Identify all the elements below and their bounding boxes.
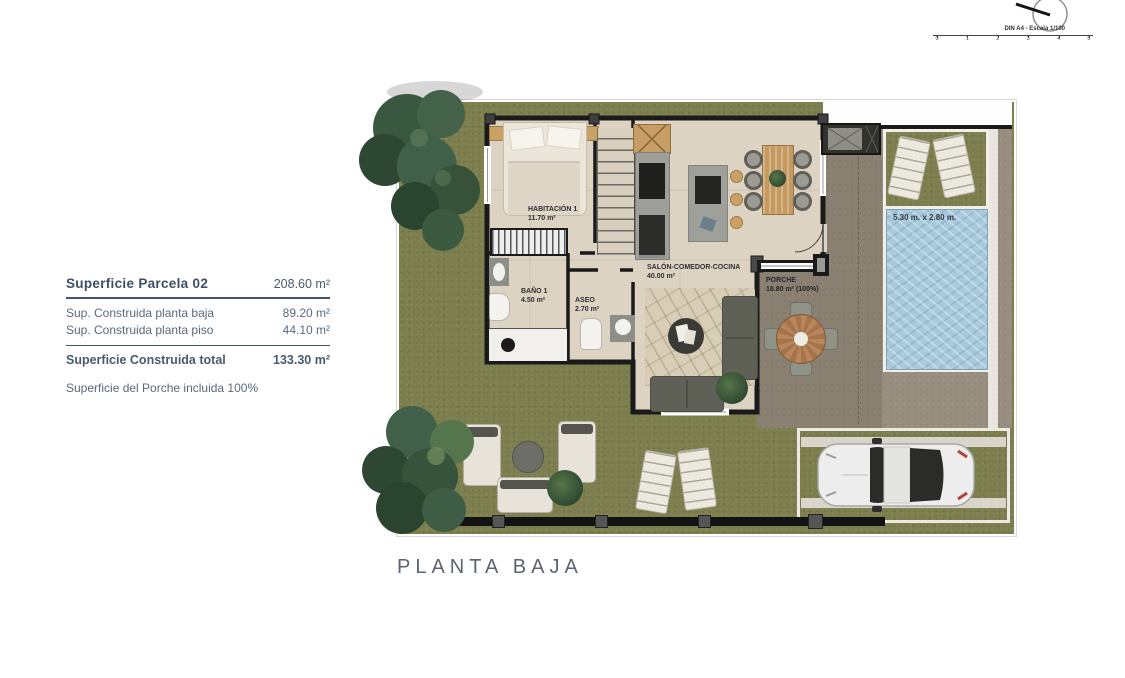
shower	[489, 328, 567, 361]
sink-basin	[615, 319, 631, 335]
fence-post	[698, 515, 711, 528]
room-area: 4.50 m²	[521, 297, 547, 306]
room-label-salon: SALÓN-COMEDOR-COCINA 40.00 m²	[647, 264, 740, 282]
table-plant	[769, 170, 786, 187]
room-name: BAÑO 1	[521, 288, 547, 297]
fence-post	[595, 515, 608, 528]
toilet	[489, 293, 510, 321]
bar-stool	[730, 193, 743, 206]
sofa-backrest	[561, 424, 593, 434]
scale-tick: 0	[933, 36, 941, 42]
dining-chair	[744, 192, 763, 211]
sheet-title: PLANTA BAJA	[397, 556, 583, 579]
room-name: ASEO	[575, 297, 599, 306]
oven	[639, 215, 665, 258]
scale-tick: 1	[963, 36, 971, 42]
dining-chair	[793, 192, 812, 211]
legend-total-value: 133.30 m²	[273, 353, 330, 367]
pool-dimensions: 5.30 m. x 2.80 m.	[893, 213, 956, 222]
scale-tick: 5	[1085, 36, 1093, 42]
scale-tick: 3	[1024, 36, 1032, 42]
coffee-table	[668, 318, 704, 354]
legend-row-label: Sup. Construida planta piso	[66, 323, 213, 337]
pillow	[546, 125, 582, 149]
closet	[633, 124, 671, 154]
room-area: 40.00 m²	[647, 273, 740, 282]
sofa-seam	[726, 337, 754, 339]
indoor-plant	[716, 372, 748, 404]
room-area: 2.70 m²	[575, 306, 599, 315]
island-sink	[699, 216, 716, 232]
tree-cluster-bottom	[350, 390, 510, 540]
legend-row-label: Sup. Construida planta baja	[66, 306, 214, 320]
pillow	[509, 126, 545, 151]
porch-table-center	[794, 332, 808, 346]
fence-post	[808, 514, 823, 529]
sofa-seam	[686, 380, 688, 408]
room-name: PORCHE	[766, 277, 819, 286]
dining-chair	[793, 171, 812, 190]
fridge	[639, 163, 665, 199]
floorplan-sheet: DIN A4 - Escala 1/100 0 1 2 3 4 5 Superf…	[0, 0, 1125, 678]
room-label-porche: PORCHE 18.80 m² (100%)	[766, 277, 819, 295]
bar-stool	[730, 216, 743, 229]
staircase	[597, 128, 634, 255]
washbasin-cabinet	[610, 315, 635, 342]
legend-divider	[66, 297, 330, 299]
room-name: HABITACIÓN 1	[528, 206, 577, 215]
legend-row-value: 44.10 m²	[283, 323, 330, 337]
legend-title: Superficie Parcela 02	[66, 276, 208, 291]
scale-tick: 4	[1055, 36, 1063, 42]
kitchen-island	[688, 165, 728, 242]
surface-legend: Superficie Parcela 02 208.60 m² Sup. Con…	[66, 276, 330, 395]
room-name: SALÓN-COMEDOR-COCINA	[647, 264, 740, 273]
legend-divider	[66, 345, 330, 346]
garden-table	[512, 441, 544, 473]
scale-bar: 0 1 2 3 4 5	[933, 35, 1093, 42]
room-label-habitacion1: HABITACIÓN 1 11.70 m²	[528, 206, 577, 224]
scale-tick: 2	[994, 36, 1002, 42]
sofa	[722, 296, 758, 380]
car	[812, 436, 980, 514]
legend-row-value: 89.20 m²	[283, 306, 330, 320]
cooktop	[695, 176, 721, 204]
legend-total-label: Superficie Construida total	[66, 353, 226, 367]
toilet	[580, 318, 602, 350]
room-label-aseo: ASEO 2.70 m²	[575, 297, 599, 315]
garden-plant	[547, 470, 583, 506]
kitchen-counter	[635, 152, 670, 260]
porch-table	[776, 314, 826, 364]
bed	[503, 122, 587, 216]
bar-stool	[730, 170, 743, 183]
sofa	[650, 376, 724, 412]
room-area: 11.70 m²	[528, 215, 577, 224]
room-label-bano1: BAÑO 1 4.50 m²	[521, 288, 547, 306]
scale-label: DIN A4 - Escala 1/100	[925, 26, 1065, 32]
legend-note: Superficie del Porche incluida 100%	[66, 381, 330, 395]
tree-cluster-top	[355, 78, 505, 278]
room-area: 18.80 m² (100%)	[766, 286, 819, 295]
dining-chair	[744, 171, 763, 190]
shower-drain	[501, 338, 515, 352]
legend-title-value: 208.60 m²	[274, 277, 330, 291]
dining-chair	[744, 150, 763, 169]
dining-chair	[793, 150, 812, 169]
magazine	[684, 329, 696, 345]
